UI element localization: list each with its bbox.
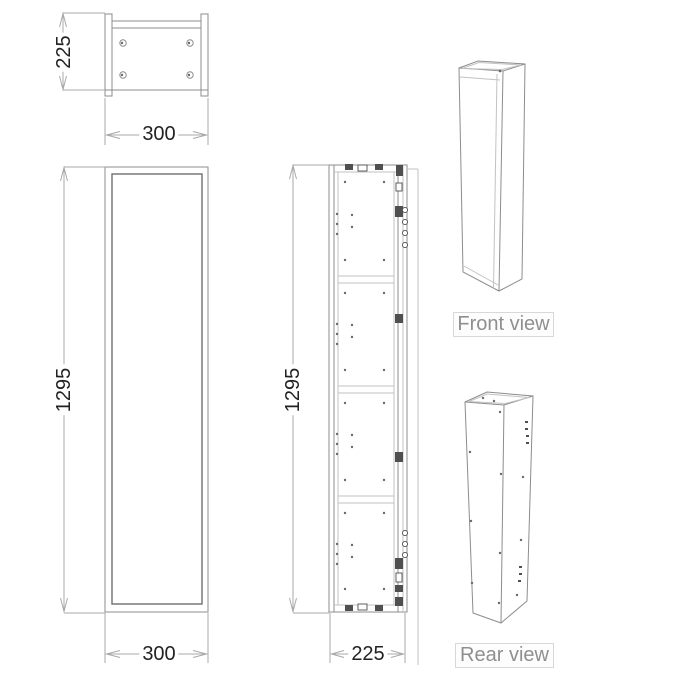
side-panel-right: [201, 14, 208, 96]
section-view: [290, 164, 419, 665]
cabinet-carcass: [105, 167, 208, 612]
iso-rear-view: [465, 392, 533, 623]
hanging-bracket: [396, 165, 403, 176]
front-view: [61, 167, 209, 663]
hinge-plate: [395, 452, 403, 462]
section-height-label: 1295: [282, 365, 304, 416]
iso-front-view: [459, 61, 525, 291]
side-panel-left: [105, 14, 112, 96]
rear-view-caption: Rear view: [455, 643, 554, 668]
plan-view: [60, 13, 209, 145]
drawing-canvas: [0, 0, 675, 675]
front-view-caption: Front view: [453, 312, 554, 337]
front-width-label: 300: [139, 643, 178, 665]
plan-width-label: 300: [139, 123, 178, 145]
hinge-plate: [395, 558, 403, 569]
cabinet-body: [465, 392, 533, 623]
hinge-plate: [395, 206, 403, 217]
cabinet-body: [459, 61, 525, 291]
screw-holes: [120, 40, 193, 78]
hinge-plate: [395, 314, 403, 323]
technical-drawing-page: 225 300 1295 300 1295 225 Front view Rea…: [0, 0, 675, 675]
plan-depth-label: 225: [53, 32, 75, 71]
hanging-bracket: [395, 597, 403, 606]
section-outline: [329, 165, 407, 612]
front-height-label: 1295: [53, 365, 75, 416]
section-depth-label: 225: [348, 643, 387, 665]
